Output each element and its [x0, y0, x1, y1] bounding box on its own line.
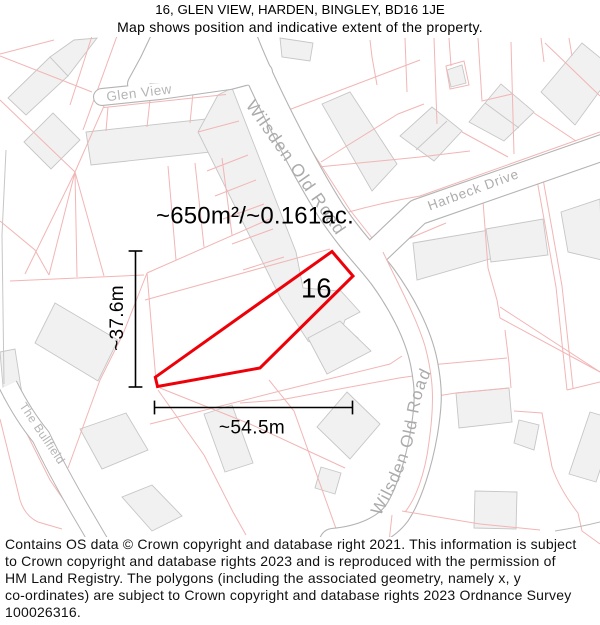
- svg-text:~37.6m: ~37.6m: [107, 285, 128, 351]
- svg-text:~650m²/~0.161ac.: ~650m²/~0.161ac.: [156, 203, 354, 230]
- svg-text:16: 16: [301, 273, 332, 304]
- svg-text:~54.5m: ~54.5m: [219, 418, 285, 439]
